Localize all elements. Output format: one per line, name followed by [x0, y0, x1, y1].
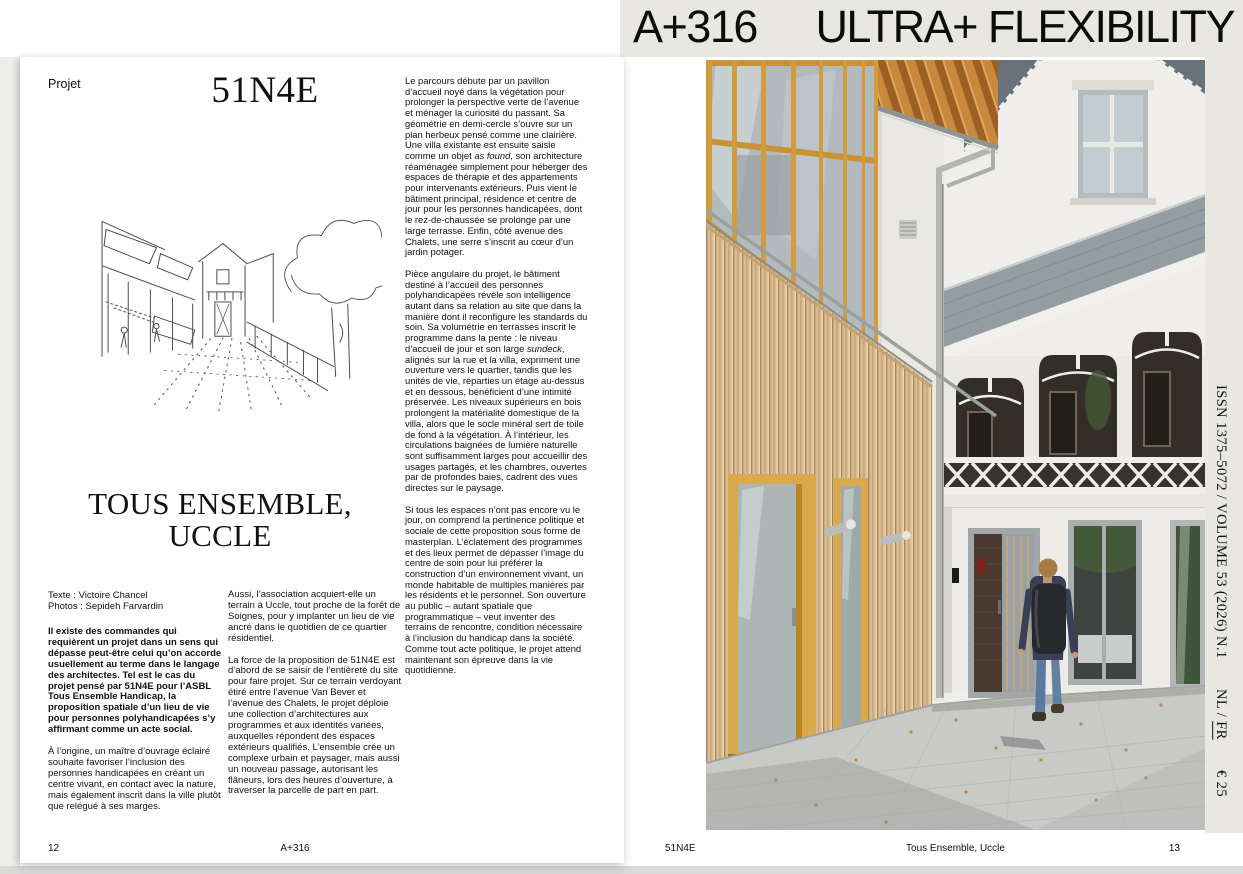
left-page: Projet 51N4E — [20, 57, 624, 863]
foliage-reflection — [1085, 370, 1111, 430]
page-number-left: 12 — [48, 843, 59, 854]
article-title: TOUS ENSEMBLE, UCCLE — [30, 488, 410, 552]
issue-theme: ULTRA+ FLEXIBILITY — [815, 1, 1234, 53]
villa-building — [944, 60, 1205, 710]
villa-side-door — [1170, 520, 1205, 690]
paragraph: La force de la proposition de 51N4E est … — [228, 656, 402, 798]
credits: Texte : Victoire Chancel Photos : Sepide… — [48, 590, 163, 612]
slat-door-large — [728, 474, 816, 760]
intro-paragraph: Il existe des commandes qui requièrent u… — [48, 627, 222, 736]
paragraph: Aussi, l’association acquiert-elle un te… — [228, 590, 402, 645]
paragraph: Pièce angulaire du projet, le bâtiment d… — [405, 269, 588, 494]
section-kicker: Projet — [48, 77, 81, 91]
paragraph: Si tous les espaces n’ont pas encore vu … — [405, 505, 588, 676]
credit-text: Texte : Victoire Chancel — [48, 590, 163, 601]
column-3: Le parcours débute par un pavillon d’acc… — [405, 76, 588, 687]
running-title-right: Tous Ensemble, Uccle — [706, 843, 1205, 854]
entrance-sign — [977, 558, 986, 573]
issue-number: A+316 — [633, 1, 757, 53]
language-fr: FR — [1213, 721, 1229, 740]
header-band: A+316 ULTRA+ FLEXIBILITY — [620, 0, 1243, 57]
page-number-right: 13 — [1135, 843, 1180, 854]
price: € 25 — [1213, 770, 1229, 797]
background-left-edge — [0, 57, 20, 866]
language-separator: / — [1213, 709, 1229, 721]
issn-volume: ISSN 1375–5072 / VOLUME 53 (2026) N.1 — [1213, 385, 1229, 659]
spine-text: ISSN 1375–5072 / VOLUME 53 (2026) N.1 NL… — [1212, 57, 1229, 833]
villa-balustrade — [944, 457, 1205, 508]
credit-photos: Photos : Sepideh Farvardin — [48, 601, 163, 612]
site-sketch — [94, 203, 382, 413]
paragraph: Le parcours débute par un pavillon d’acc… — [405, 76, 588, 258]
column-1: Il existe des commandes qui requièrent u… — [48, 627, 222, 824]
villa-ground-window — [1068, 520, 1142, 685]
person-head — [1039, 559, 1058, 578]
wall-fixture — [952, 568, 959, 583]
villa-upper-window — [1070, 80, 1156, 205]
paragraph: À l’origine, un maître d’ouvrage éclairé… — [48, 747, 222, 812]
magazine-spine: ISSN 1375–5072 / VOLUME 53 (2026) N.1 NL… — [1205, 57, 1243, 833]
vent-grille — [899, 220, 917, 239]
slat-door-small — [834, 478, 868, 750]
studio-name: 51N4E — [150, 69, 380, 112]
article-title-line2: UCCLE — [30, 520, 410, 552]
running-studio-right: 51N4E — [665, 843, 696, 854]
language-nl: NL — [1213, 689, 1229, 709]
courtyard-photo — [706, 60, 1205, 830]
running-title-left: A+316 — [185, 843, 405, 854]
article-title-line1: TOUS ENSEMBLE, — [30, 488, 410, 520]
column-2: Aussi, l’association acquiert-elle un te… — [228, 590, 402, 808]
spread-bottom-edge — [0, 866, 1243, 874]
